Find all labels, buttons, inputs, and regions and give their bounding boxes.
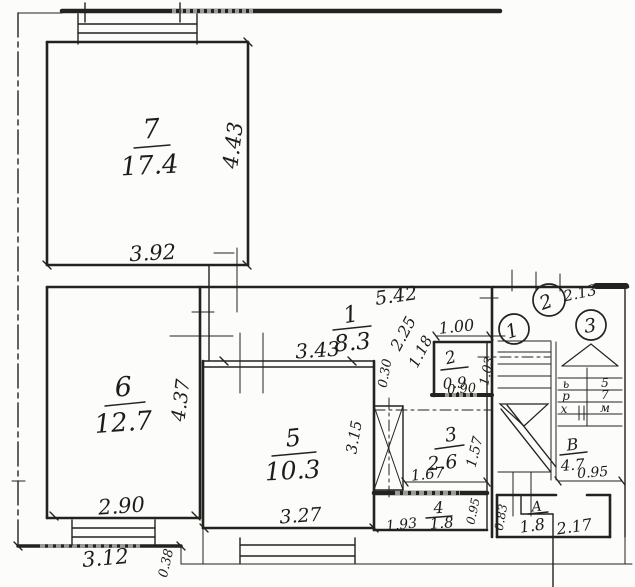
dim-room2-top: 1.00 <box>438 315 475 338</box>
room-3-number: 3 <box>443 423 459 447</box>
dim-hall-length: 5.42 <box>374 282 419 310</box>
room-4: 4 1.8 1.93 0.95 <box>374 493 487 535</box>
dim-corridor-height: 0.83 <box>492 503 510 532</box>
dim-room7-width: 3.92 <box>129 240 177 266</box>
stair-flight-left <box>498 341 556 516</box>
dim-hall-top: 3.43 <box>294 336 340 363</box>
dim-room6-width: 2.90 <box>96 492 145 519</box>
window-room7 <box>78 14 197 44</box>
dim-room2-bottom: 0.90 <box>447 381 477 398</box>
dim-wall-038: 0.38 <box>156 547 177 579</box>
room-1-number: 1 <box>341 301 360 329</box>
room-7-area: 17.4 <box>120 150 179 183</box>
vent-shaft <box>374 398 403 497</box>
stair-mark: р <box>562 389 570 403</box>
dim-room5-width: 3.27 <box>279 504 324 529</box>
landing-B-label: В <box>565 434 580 454</box>
dim-room3-width: 1.67 <box>410 463 446 484</box>
room-5-area: 10.3 <box>264 455 321 487</box>
entry-3-label: 3 <box>583 314 598 337</box>
dim-room7-height: 4.43 <box>218 120 248 170</box>
entry-1-label: 1 <box>503 319 521 344</box>
stair-landing-B: В 4.7 0.95 <box>555 434 625 485</box>
dim-wall-030: 0.30 <box>376 358 396 389</box>
dim-stair-top: 2.13 <box>561 281 598 306</box>
room-2-number: 2 <box>442 347 459 369</box>
dim-landing-095: 0.95 <box>577 464 609 482</box>
stair-mark: х <box>561 402 568 416</box>
dim-room6-width-outer: 3.12 <box>81 544 130 572</box>
section-boundary-lines <box>12 3 632 564</box>
stair-flight-right: ь 5 р 7 х м <box>558 344 622 426</box>
room-7: 7 17.4 3.92 4.43 <box>43 14 252 312</box>
dim-room4-height: 0.95 <box>463 497 482 526</box>
dim-corridor-width: 2.17 <box>554 515 594 539</box>
window-room6 <box>72 520 155 545</box>
room-4-area: 1.8 <box>429 513 454 533</box>
room-6-area: 12.7 <box>94 406 154 440</box>
stair-mark: м <box>600 401 610 415</box>
dim-room6-height: 4.37 <box>167 377 194 424</box>
window-room5 <box>240 538 355 563</box>
room-6-number: 6 <box>114 371 133 403</box>
room-6: 6 12.7 2.90 4.37 3.12 0.38 <box>14 287 233 579</box>
dim-room4-width: 1.93 <box>385 515 418 534</box>
dim-room5-height: 3.15 <box>342 419 366 455</box>
room-5-number: 5 <box>284 423 302 452</box>
corridor-A: А 1.8 2.17 0.83 <box>492 495 610 587</box>
entry-circles: 1 2 3 2.13 <box>499 281 606 344</box>
dim-room3-height: 1.57 <box>464 435 487 469</box>
scanned-floor-plan-page: 7 17.4 3.92 4.43 6 12.7 2.90 4.37 3.12 <box>0 0 635 587</box>
corridor-A-area: 1.8 <box>518 514 546 536</box>
floor-plan-canvas: 7 17.4 3.92 4.43 6 12.7 2.90 4.37 3.12 <box>0 0 635 587</box>
room-5: 5 10.3 3.27 3.15 <box>200 361 378 564</box>
stair-mark: 7 <box>601 388 609 402</box>
stairwell: 1 2 3 2.13 <box>478 270 628 537</box>
room-7-number: 7 <box>142 113 162 145</box>
